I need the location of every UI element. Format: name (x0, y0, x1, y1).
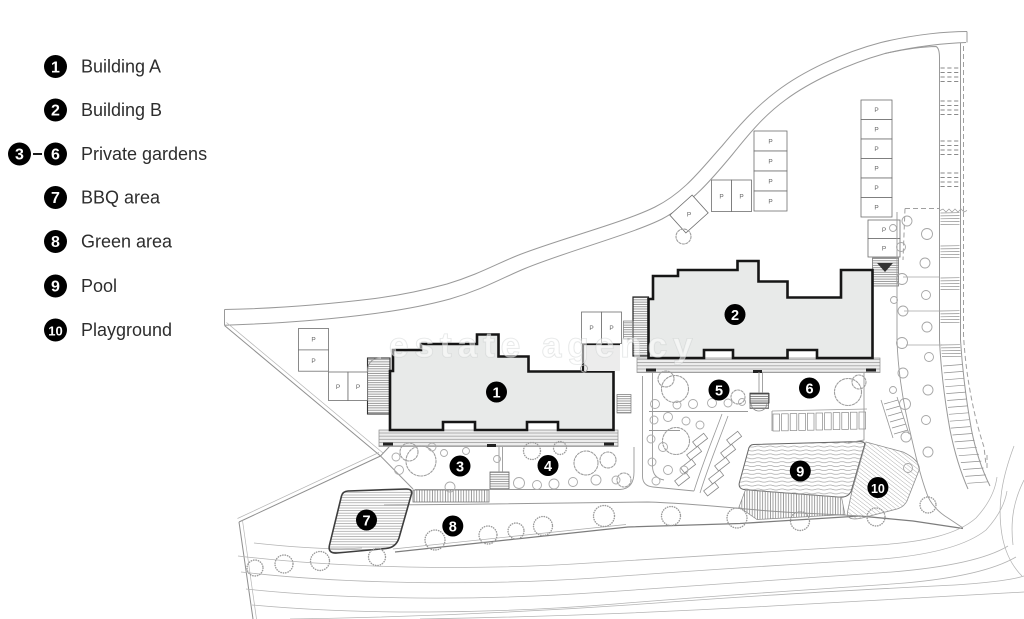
svg-text:Pool: Pool (81, 276, 117, 296)
svg-text:P: P (874, 166, 878, 173)
svg-text:P: P (874, 205, 878, 212)
svg-text:P: P (739, 194, 743, 201)
svg-text:P: P (882, 227, 886, 234)
svg-text:Playground: Playground (81, 320, 172, 340)
svg-text:Building B: Building B (81, 100, 162, 120)
svg-text:8: 8 (51, 234, 60, 251)
svg-text:4: 4 (544, 459, 552, 475)
svg-text:2: 2 (731, 308, 739, 324)
svg-text:estate agency: estate agency (389, 326, 699, 365)
svg-text:P: P (874, 146, 878, 153)
svg-text:P: P (768, 159, 772, 166)
svg-text:P: P (874, 185, 878, 192)
svg-text:P: P (768, 179, 772, 186)
svg-text:3: 3 (456, 459, 464, 475)
svg-text:5: 5 (715, 383, 723, 399)
svg-text:P: P (882, 246, 886, 253)
svg-text:3: 3 (15, 147, 24, 164)
svg-text:P: P (874, 127, 878, 134)
svg-text:Green area: Green area (81, 232, 173, 252)
svg-text:1: 1 (492, 385, 500, 401)
svg-text:P: P (336, 384, 340, 391)
svg-text:6: 6 (51, 147, 60, 164)
svg-text:10: 10 (48, 324, 62, 339)
svg-text:7: 7 (362, 513, 370, 529)
svg-text:9: 9 (796, 464, 804, 480)
svg-text:10: 10 (871, 482, 885, 496)
svg-text:P: P (719, 194, 723, 201)
svg-text:1: 1 (51, 60, 60, 77)
svg-text:P: P (874, 107, 878, 114)
svg-text:BBQ area: BBQ area (81, 188, 161, 208)
svg-text:6: 6 (805, 381, 813, 397)
svg-text:7: 7 (51, 190, 60, 207)
svg-text:P: P (311, 358, 315, 365)
svg-text:8: 8 (449, 519, 457, 535)
svg-text:P: P (768, 139, 772, 146)
svg-text:P: P (311, 337, 315, 344)
svg-text:2: 2 (51, 103, 60, 120)
svg-text:9: 9 (51, 279, 60, 296)
svg-text:P: P (687, 212, 691, 219)
svg-text:P: P (356, 384, 360, 391)
svg-text:Building A: Building A (81, 57, 161, 77)
svg-text:Private gardens: Private gardens (81, 144, 207, 164)
svg-text:P: P (768, 199, 772, 206)
